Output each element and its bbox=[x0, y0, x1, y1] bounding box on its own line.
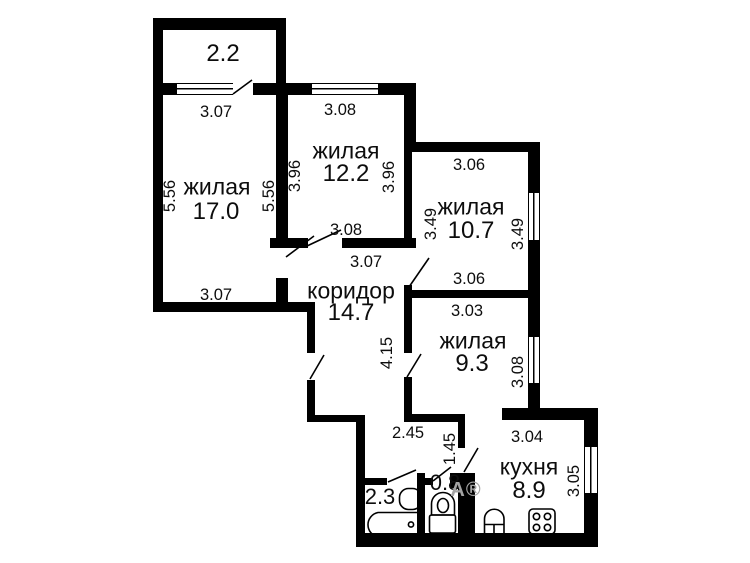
kitchen-name-label: кухня bbox=[500, 456, 558, 479]
door-swing-line bbox=[407, 354, 421, 377]
dim-hall-height: 1.45 bbox=[442, 433, 459, 465]
dim-room107-right: 3.49 bbox=[510, 218, 527, 250]
room93-area-label: 9.3 bbox=[455, 352, 488, 376]
room12-area-label: 12.2 bbox=[323, 162, 370, 186]
dim-room107-left: 3.49 bbox=[423, 208, 440, 240]
dim-room12-top: 3.08 bbox=[324, 102, 356, 119]
bath-sink-icon bbox=[400, 489, 422, 510]
dim-room12-right: 3.96 bbox=[381, 161, 398, 193]
dim-hall-width: 2.45 bbox=[392, 425, 424, 442]
door-swing-line bbox=[286, 236, 314, 257]
door-swing-line bbox=[233, 80, 252, 94]
floor-plan: 2.2 жилая 17.0 жилая 12.2 жилая 10.7 жил… bbox=[0, 0, 750, 563]
dim-kitchen-top: 3.04 bbox=[511, 429, 543, 446]
dim-room17-right: 5.56 bbox=[261, 180, 278, 212]
dim-corridor-top: 3.07 bbox=[350, 254, 382, 271]
room107-area-label: 10.7 bbox=[448, 219, 495, 243]
dim-room17-left: 5.56 bbox=[162, 180, 179, 212]
watermark-text: А® bbox=[450, 480, 481, 500]
corridor-area-label: 14.7 bbox=[328, 301, 375, 325]
dim-room93-right: 3.08 bbox=[510, 356, 527, 388]
kitchen-area-label: 8.9 bbox=[512, 479, 545, 503]
dim-kitchen-right: 3.05 bbox=[566, 465, 583, 497]
dim-room12-bottom: 3.08 bbox=[330, 222, 362, 239]
dim-room107-top: 3.06 bbox=[453, 157, 485, 174]
bath-area-label: 2.3 bbox=[365, 486, 396, 508]
dim-room17-bottom: 3.07 bbox=[200, 287, 232, 304]
kitchen-sink-icon bbox=[485, 509, 505, 536]
door-swing-line bbox=[464, 448, 478, 472]
dim-room107-bottom: 3.06 bbox=[453, 271, 485, 288]
room17-area-label: 17.0 bbox=[193, 200, 240, 224]
room17-name-label: жилая bbox=[184, 176, 251, 199]
door-swing-line bbox=[310, 355, 324, 379]
dim-room17-top: 3.07 bbox=[200, 104, 232, 121]
bathtub-icon bbox=[368, 513, 421, 538]
stove-icon bbox=[529, 509, 555, 534]
door-swing-line bbox=[388, 470, 416, 482]
dim-corridor-height: 4.15 bbox=[379, 337, 396, 369]
room107-name-label: жилая bbox=[438, 196, 505, 219]
door-swing-line bbox=[409, 258, 429, 287]
dim-room12-left: 3.96 bbox=[287, 160, 304, 192]
balcony-area-label: 2.2 bbox=[206, 42, 239, 66]
dim-room93-top: 3.03 bbox=[451, 303, 483, 320]
